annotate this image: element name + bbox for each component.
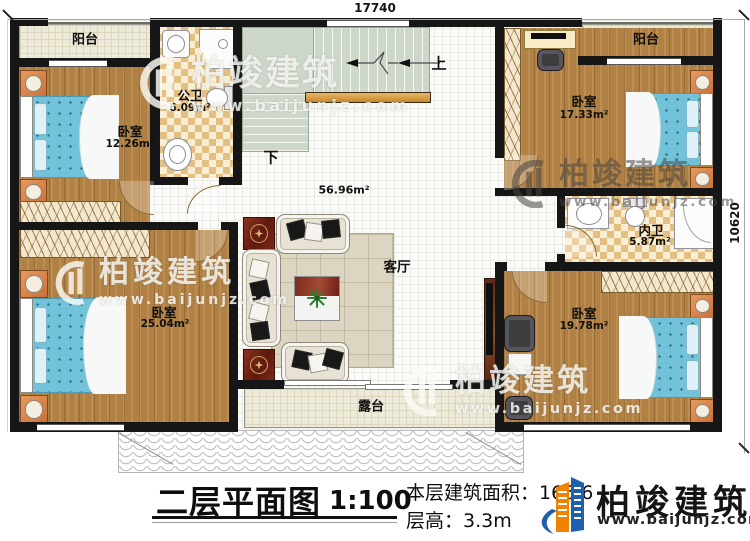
wall xyxy=(450,380,504,389)
compass-star-icon xyxy=(250,356,268,374)
bed-sheet xyxy=(626,92,661,167)
headboard xyxy=(20,96,33,178)
floor-height-text: 层高：3.3m xyxy=(406,506,512,533)
pillow xyxy=(34,103,47,135)
wall xyxy=(219,177,242,185)
room-area-label: 56.96m² xyxy=(318,185,369,196)
wall xyxy=(229,222,238,432)
compass-star-icon xyxy=(250,224,268,243)
dimension-line-right xyxy=(744,19,745,453)
room-label: 卧室 xyxy=(571,308,596,321)
room-label: 卧室 xyxy=(117,126,142,139)
nightstand xyxy=(690,399,715,423)
sink-icon xyxy=(163,138,192,171)
stair-landing xyxy=(242,27,317,95)
room-label: 露台 xyxy=(358,401,384,414)
title-underline xyxy=(152,522,397,523)
tv-icon xyxy=(531,33,566,39)
side-table-red xyxy=(243,217,275,250)
shower-drain xyxy=(218,39,228,49)
cushion xyxy=(321,219,341,239)
balcony-railing xyxy=(48,22,152,24)
room-label: 阳台 xyxy=(633,34,659,47)
window xyxy=(607,58,681,65)
side-table-red xyxy=(243,349,275,381)
wall xyxy=(713,18,722,432)
sink-basin xyxy=(169,145,186,164)
bed-sheet xyxy=(619,316,657,399)
room-label: 阳台 xyxy=(72,34,98,47)
room-area-label: 19.78m² xyxy=(560,321,609,332)
sliding-door xyxy=(284,380,371,386)
room-label: 卧室 xyxy=(571,96,596,109)
title-underline xyxy=(152,516,397,519)
lamp-icon xyxy=(695,75,711,91)
pillow xyxy=(34,139,47,171)
stair-direction-arrow-icon xyxy=(338,50,442,76)
room-area-label: 5.87m² xyxy=(629,237,670,248)
shower-tray xyxy=(683,205,711,243)
room-area-label: 17.33m² xyxy=(560,110,609,121)
wall xyxy=(150,177,188,185)
nightstand xyxy=(690,294,715,318)
room-label: 客厅 xyxy=(384,261,411,275)
shower-icon xyxy=(674,198,715,249)
room-area-label: 12.26m² xyxy=(106,139,155,150)
bed xyxy=(620,317,713,398)
pillow xyxy=(34,348,47,384)
chair xyxy=(537,49,564,71)
plan-scale: 1:100 xyxy=(329,486,412,516)
vanity-sink-icon xyxy=(567,198,609,229)
nightstand xyxy=(20,70,47,97)
wardrobe xyxy=(601,271,714,293)
balcony-railing xyxy=(582,22,713,24)
lamp-icon xyxy=(695,299,711,314)
bed xyxy=(20,96,118,178)
lamp-icon xyxy=(695,404,711,419)
window xyxy=(49,60,107,67)
lamp-icon xyxy=(25,275,43,293)
side-table xyxy=(508,353,532,375)
stair-railing xyxy=(305,92,431,103)
headboard xyxy=(20,298,33,393)
pillow xyxy=(34,307,47,343)
desk-chair xyxy=(505,396,533,420)
stair-down-label: 下 xyxy=(263,151,278,166)
cushion xyxy=(249,279,270,300)
nightstand xyxy=(20,270,48,298)
lamp-icon xyxy=(25,75,42,92)
pillow xyxy=(686,324,699,355)
wardrobe xyxy=(20,201,121,224)
headboard xyxy=(700,93,713,166)
room-area-label: 25.04m² xyxy=(141,319,190,330)
sliding-door xyxy=(365,384,453,390)
washer-drum xyxy=(167,35,185,53)
wall xyxy=(545,262,713,271)
cushion xyxy=(248,258,269,279)
stair-lower-run xyxy=(242,93,309,152)
wardrobe xyxy=(20,229,150,258)
nightstand xyxy=(20,395,48,424)
dimension-top-width: 17740 xyxy=(345,1,405,15)
tv-icon xyxy=(486,283,493,355)
lamp-icon xyxy=(695,172,711,187)
lamp-icon xyxy=(25,184,42,200)
lamp-icon xyxy=(25,400,43,418)
wall xyxy=(150,18,160,185)
bed xyxy=(627,93,713,166)
sink-basin xyxy=(576,203,602,225)
dimension-right-height: 10620 xyxy=(728,193,742,253)
bed xyxy=(20,298,125,393)
cushion xyxy=(250,321,270,341)
room-label: 公卫 xyxy=(177,90,202,103)
roof-tile-band xyxy=(118,430,524,473)
pillow xyxy=(686,100,699,128)
desk-chair xyxy=(504,315,535,352)
wall xyxy=(557,254,565,262)
wall xyxy=(495,188,713,196)
wall xyxy=(495,262,504,432)
wall xyxy=(238,380,284,389)
wall xyxy=(495,18,504,158)
stair-up-label: 上 xyxy=(431,57,446,72)
window xyxy=(37,424,124,431)
wall xyxy=(10,222,198,230)
pillow xyxy=(686,360,699,391)
washer-icon xyxy=(162,30,190,58)
window xyxy=(524,424,690,431)
dimension-extension-line xyxy=(7,19,8,432)
headboard xyxy=(700,317,713,398)
coffee-table xyxy=(294,276,340,321)
wardrobe xyxy=(504,28,521,161)
brand-website: www.baijunjz.com xyxy=(597,512,750,528)
window xyxy=(327,20,409,27)
wall xyxy=(233,18,242,185)
floor-plan-page: 阳台 阳台 公卫 6.09m² 卧室 12.26m² 卧室 17.33m² 内卫… xyxy=(0,0,750,541)
brand-logo-icon xyxy=(536,473,588,535)
pillow xyxy=(686,131,699,159)
wall xyxy=(557,196,565,228)
bed-sheet xyxy=(83,297,126,394)
nightstand xyxy=(690,70,715,95)
room-area-label: 6.09m² xyxy=(169,103,210,114)
plant-icon xyxy=(306,287,328,309)
dimension-line-top xyxy=(8,19,744,20)
